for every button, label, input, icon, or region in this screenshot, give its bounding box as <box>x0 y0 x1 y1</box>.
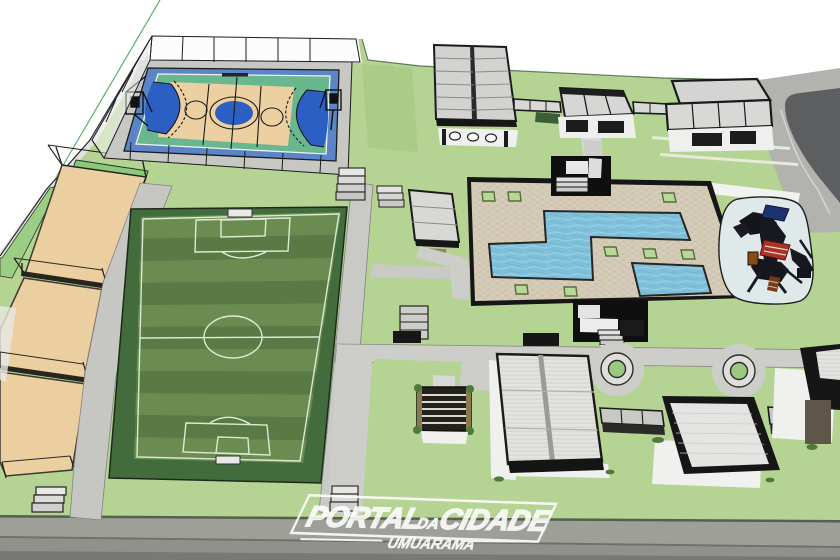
svg-text:PORTAL: PORTAL <box>303 501 425 536</box>
svg-text:CIDADE: CIDADE <box>436 503 555 537</box>
svg-text:UMUARAMA: UMUARAMA <box>385 536 476 553</box>
